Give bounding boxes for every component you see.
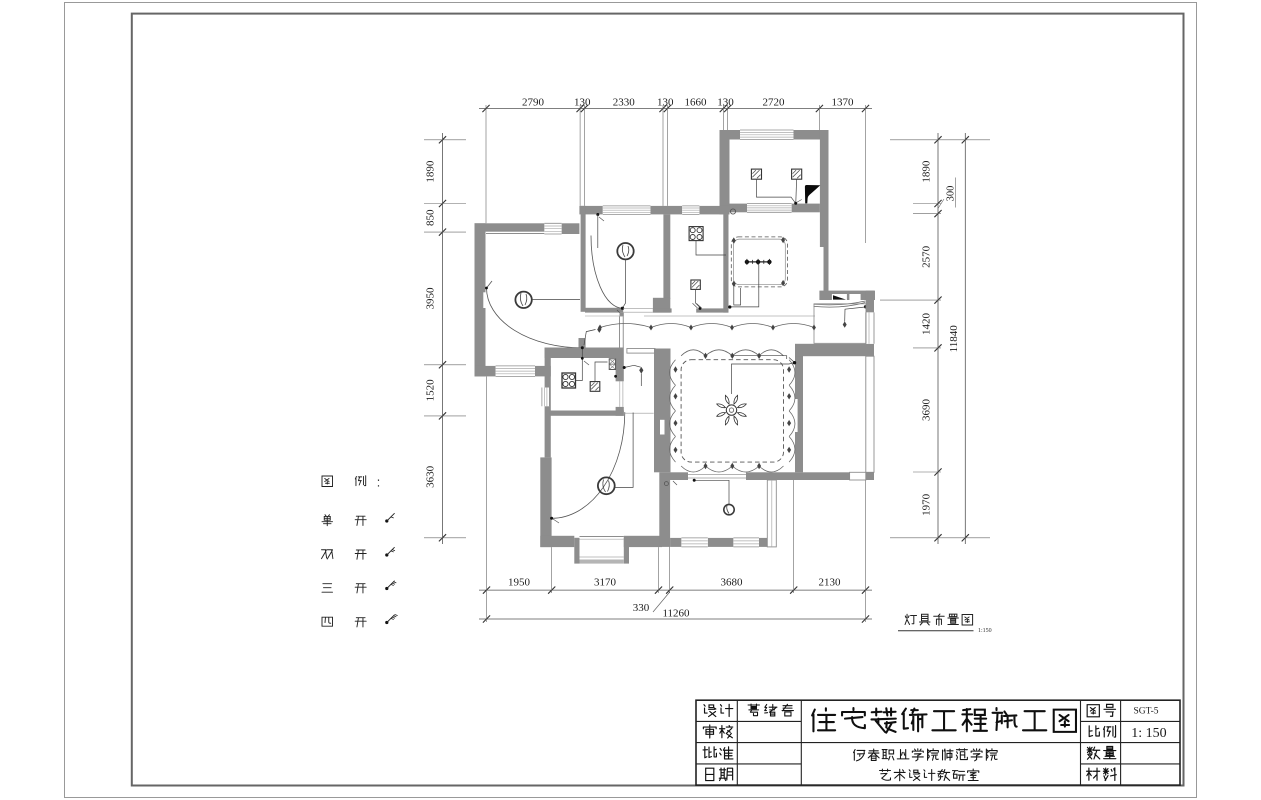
svg-text:130: 130 [717,97,734,109]
svg-text:1:150: 1:150 [978,628,992,634]
svg-text:3630: 3630 [425,465,437,488]
svg-text:11260: 11260 [662,608,690,620]
svg-text:1: 150: 1: 150 [1131,726,1166,741]
svg-text:1660: 1660 [685,97,708,109]
svg-text:2790: 2790 [522,97,545,109]
svg-text:1970: 1970 [921,493,933,516]
svg-text:1890: 1890 [921,160,933,183]
svg-text:3950: 3950 [425,287,437,310]
svg-text:2130: 2130 [819,577,842,589]
svg-text:1520: 1520 [425,379,437,402]
svg-text:11840: 11840 [948,325,960,353]
svg-text:330: 330 [633,602,650,614]
svg-text:1950: 1950 [508,577,531,589]
svg-text:2720: 2720 [763,97,786,109]
svg-text:3170: 3170 [594,577,617,589]
svg-text:300: 300 [946,186,957,202]
svg-text:130: 130 [657,97,674,109]
svg-text:130: 130 [574,97,591,109]
svg-text:3690: 3690 [921,399,933,422]
svg-text:SGT-5: SGT-5 [1134,707,1159,717]
svg-text:1420: 1420 [921,313,933,336]
svg-text:3680: 3680 [721,577,744,589]
svg-text:850: 850 [425,209,437,226]
svg-text:2570: 2570 [921,245,933,268]
svg-text::: : [377,476,380,490]
svg-text:1370: 1370 [832,97,855,109]
svg-text:2330: 2330 [613,97,636,109]
svg-text:1890: 1890 [425,160,437,183]
